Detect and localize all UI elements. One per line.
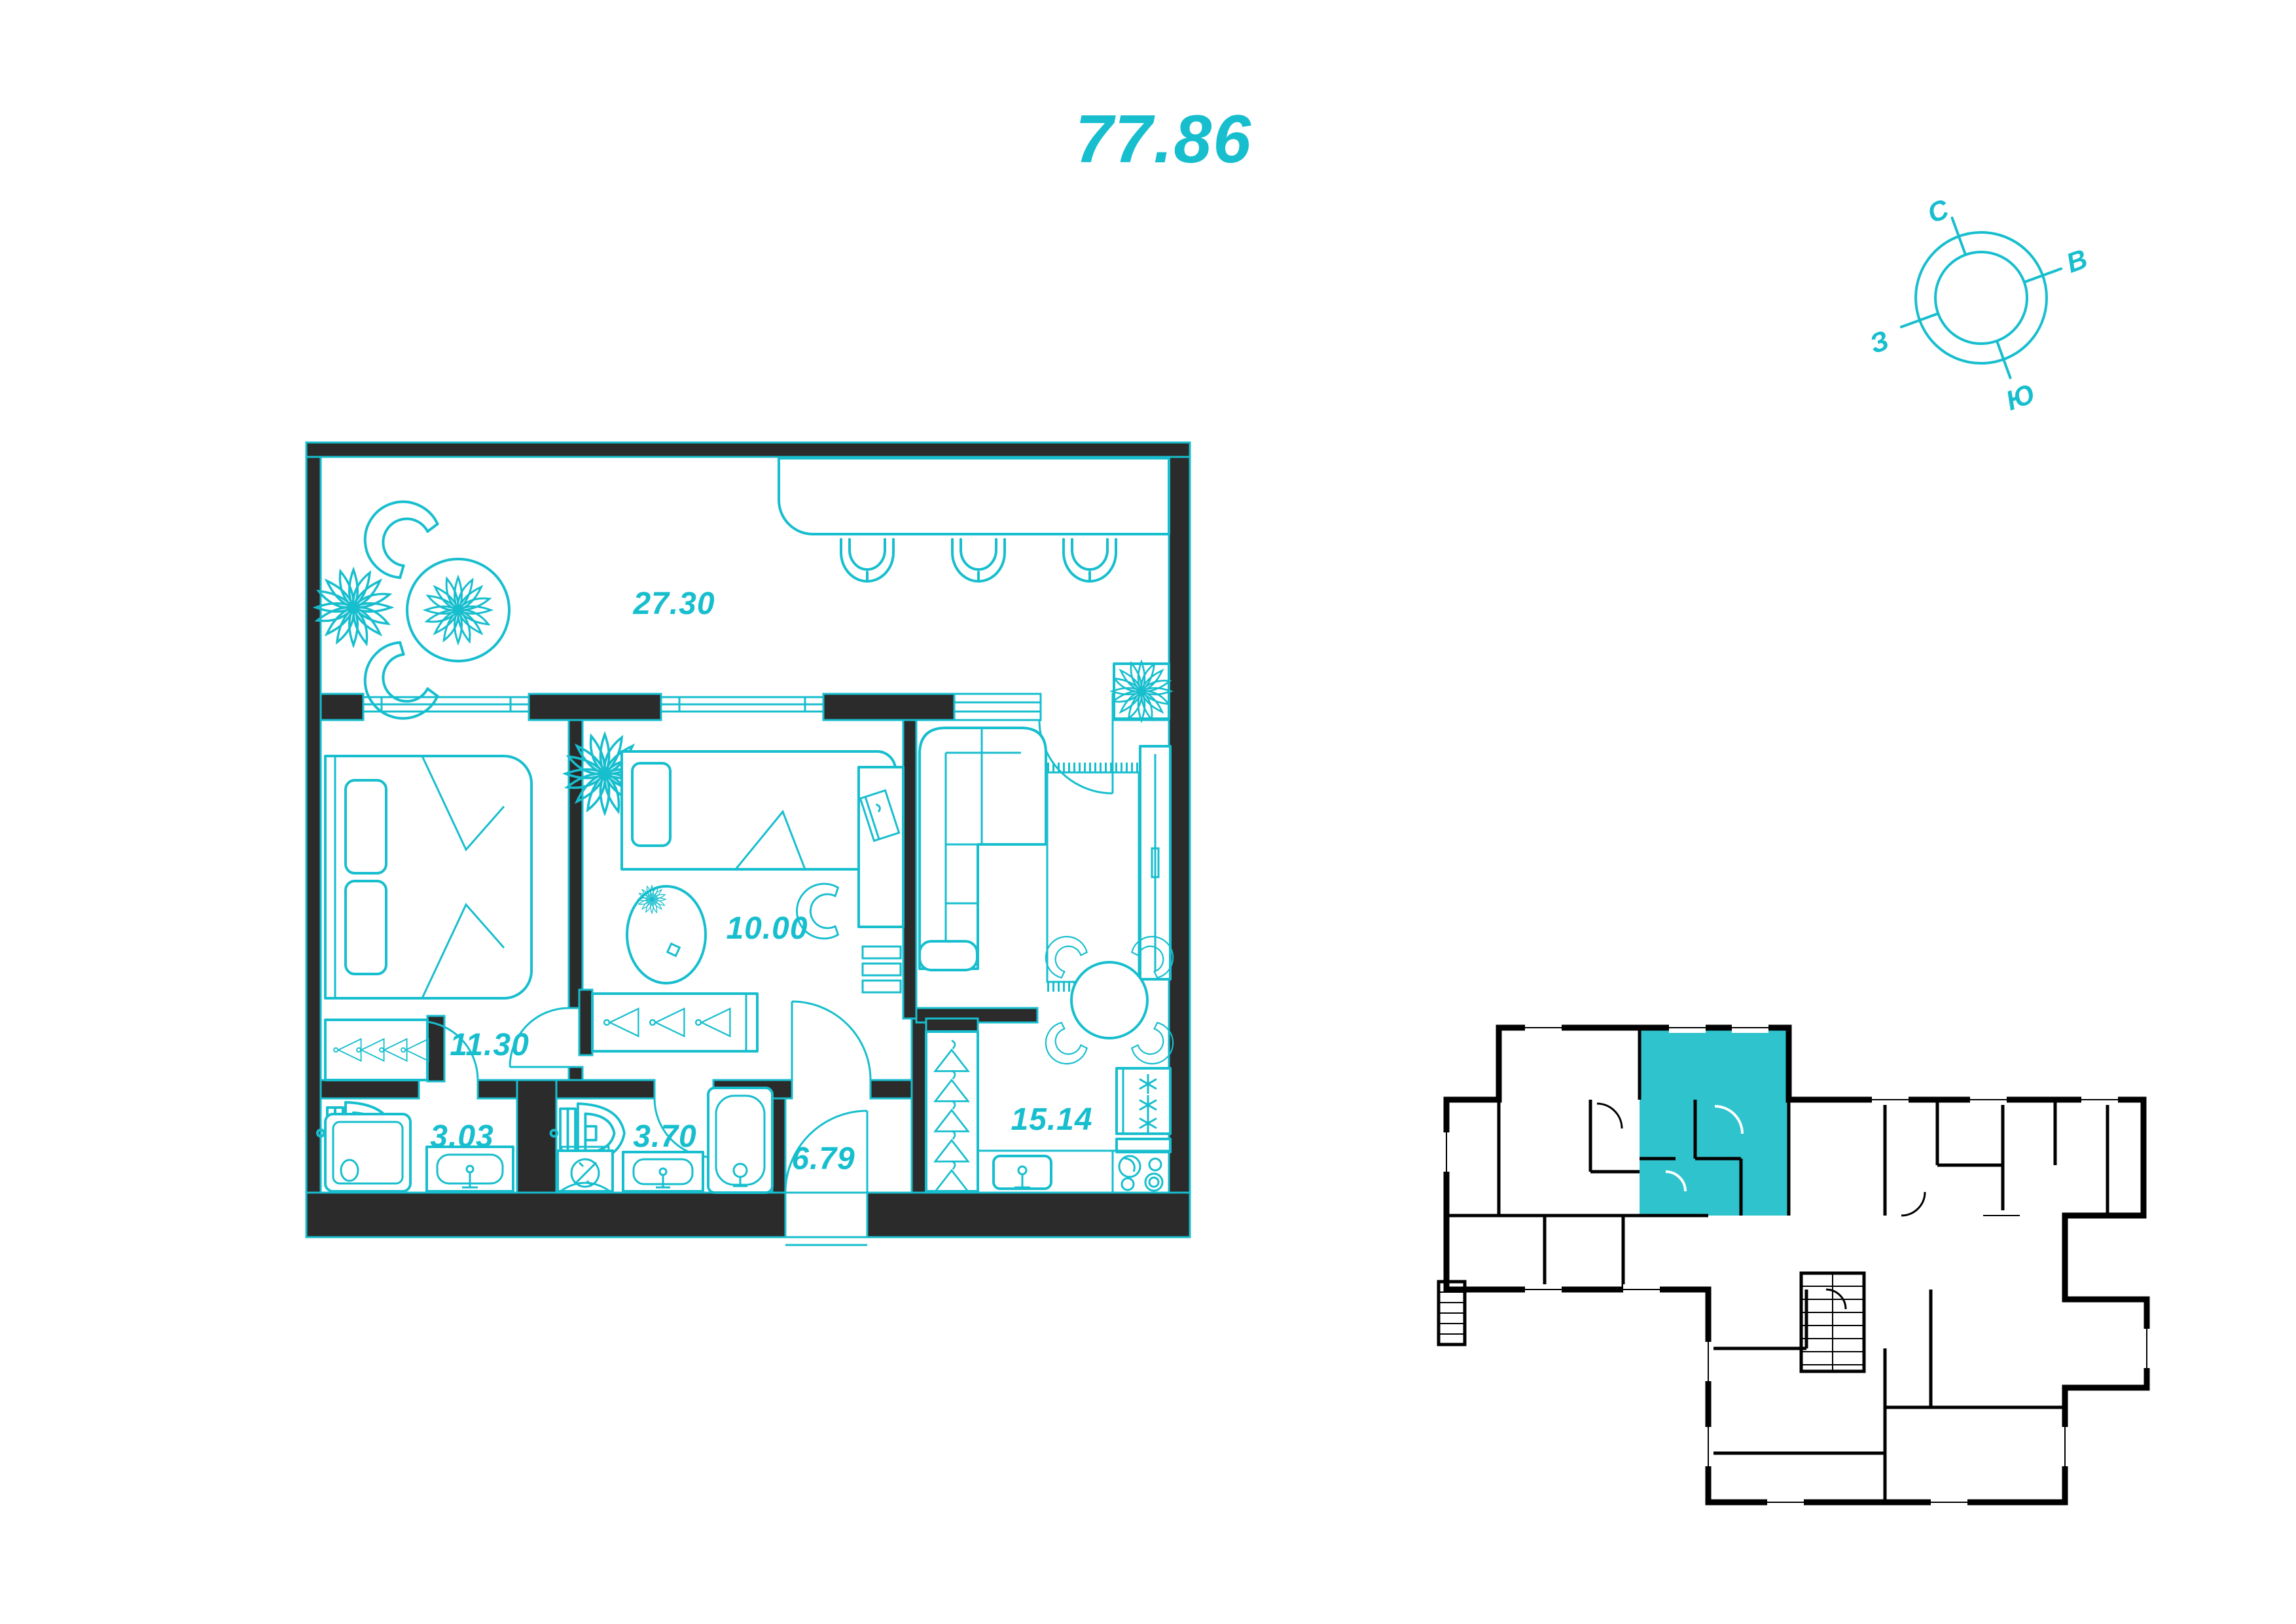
- bar-stool: [1064, 539, 1116, 581]
- key-plan-building-outline: [1446, 1028, 2147, 1502]
- dining-chair: [1037, 1020, 1089, 1072]
- room-bedroom: 11.30: [325, 756, 531, 1080]
- dining-chair: [1037, 928, 1089, 980]
- compass-north-label: С: [1924, 193, 1953, 229]
- room-bathroom-2: 3.70: [551, 1088, 772, 1193]
- label-living-area: 27.30: [632, 586, 715, 621]
- label-bathroom1-area: 3.03: [430, 1119, 493, 1154]
- round-rug: [627, 886, 706, 983]
- compass-rose-icon: С В З Ю: [1865, 189, 2091, 416]
- label-bathroom2-area: 3.70: [633, 1119, 696, 1154]
- shower-tray: [325, 1114, 410, 1191]
- compass-west-label: З: [1865, 325, 1892, 359]
- compass-east-label: В: [2062, 243, 2092, 279]
- bathtub: [708, 1088, 772, 1193]
- label-hallway-area: 6.79: [791, 1142, 855, 1176]
- pillow: [346, 881, 386, 974]
- wardrobe: [592, 994, 757, 1051]
- label-study-area: 10.00: [726, 911, 808, 946]
- dining-table: [1071, 962, 1147, 1038]
- bar-counter: [779, 458, 1169, 534]
- label-kitchen-area: 15.14: [1011, 1102, 1092, 1137]
- label-bedroom-area: 11.30: [450, 1028, 529, 1062]
- floor-plan-page: 77.86 С В З Ю: [0, 0, 2296, 1624]
- wardrobe: [325, 1020, 427, 1080]
- apartment-plan: 27.30 11.30: [301, 442, 1190, 1245]
- stove: [1113, 1151, 1162, 1193]
- bar-stool: [841, 539, 893, 581]
- room-hallway: 6.79: [791, 1032, 978, 1191]
- fridge: [1117, 1068, 1170, 1134]
- washing-machine: [558, 1147, 613, 1191]
- room-study: 10.00: [550, 719, 903, 1051]
- sofa-arm: [920, 941, 977, 970]
- washbasin: [623, 1152, 703, 1191]
- pillow: [632, 763, 670, 846]
- floor-plan-canvas: 77.86 С В З Ю: [0, 0, 2296, 1624]
- pillow: [346, 780, 386, 873]
- page-title-total-area: 77.86: [1075, 101, 1252, 177]
- key-plan-highlighted-unit[interactable]: [1640, 1028, 1789, 1216]
- key-plan: [1439, 1022, 2152, 1507]
- armchair: [350, 487, 440, 582]
- compass-south-label: Ю: [2001, 378, 2039, 416]
- room-living: 27.30: [301, 458, 1182, 733]
- bar-stool: [952, 539, 1005, 581]
- rug: [1047, 772, 1139, 982]
- room-bathroom-1: 3.03: [317, 1102, 513, 1191]
- key-plan-windows: [1441, 1022, 2152, 1507]
